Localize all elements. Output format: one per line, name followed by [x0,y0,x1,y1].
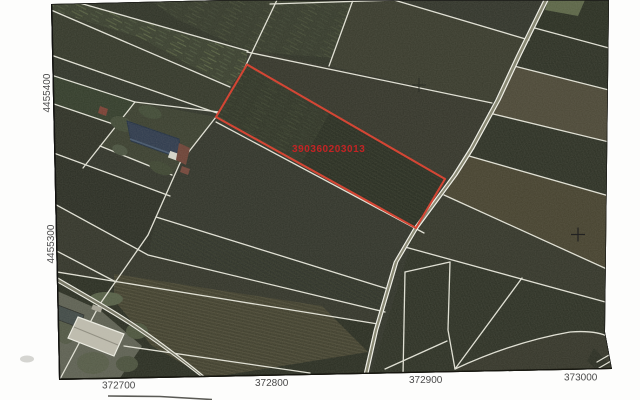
svg-text:4455400: 4455400 [42,73,53,112]
svg-text:372800: 372800 [255,378,289,389]
svg-text:390360203013: 390360203013 [292,144,365,155]
svg-text:372700: 372700 [102,381,136,392]
svg-text:373000: 373000 [564,373,598,384]
svg-text:372900: 372900 [409,375,443,386]
svg-text:4455300: 4455300 [46,224,57,263]
